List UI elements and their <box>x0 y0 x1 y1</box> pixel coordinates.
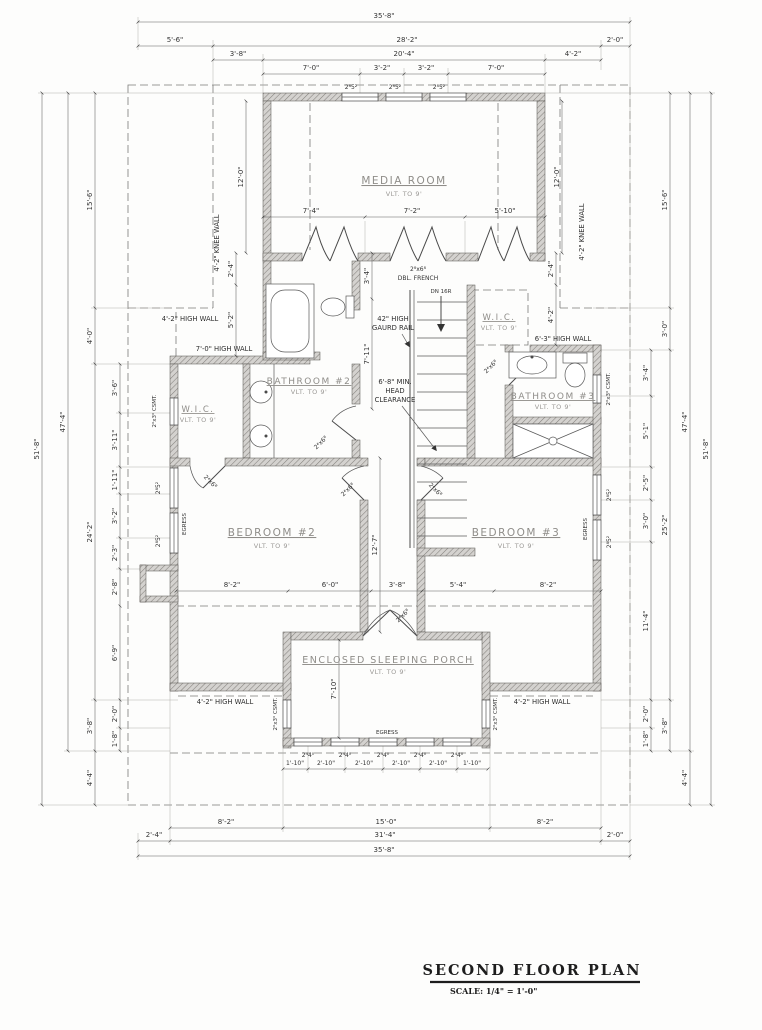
dim-right-overall: 51'-8" <box>702 438 710 459</box>
high-wall-top-left: 4'-2" HIGH WALL <box>162 315 219 323</box>
guard-rail-note: 42" HIGH <box>377 315 408 323</box>
svg-text:2'-0": 2'-0" <box>607 36 624 44</box>
sheet-scale: SCALE: 1/4" = 1'-0" <box>450 986 537 996</box>
head-clearance-note: 6'-8" MIN. <box>378 378 411 386</box>
svg-text:7'-10": 7'-10" <box>330 678 338 699</box>
door-tag-bath2: 2⁴x6⁸ <box>313 434 330 451</box>
svg-text:4'-4": 4'-4" <box>681 770 689 787</box>
svg-text:4'-2": 4'-2" <box>547 307 555 324</box>
toilet-bath3 <box>563 353 587 387</box>
svg-text:3'-2": 3'-2" <box>111 508 119 525</box>
svg-text:47'-4": 47'-4" <box>681 411 689 432</box>
svg-text:3'-8": 3'-8" <box>86 718 94 735</box>
svg-text:3'-0": 3'-0" <box>661 321 669 338</box>
bedroom2-label: BEDROOM #2 <box>228 527 317 539</box>
svg-text:12'-0": 12'-0" <box>553 166 561 187</box>
svg-text:8'-2": 8'-2" <box>537 818 554 826</box>
svg-text:25'-2": 25'-2" <box>661 514 669 535</box>
svg-text:11'-4": 11'-4" <box>642 610 650 631</box>
svg-text:2'-0": 2'-0" <box>607 831 624 839</box>
door-tag-wic: 2⁴x6⁸ <box>202 474 219 491</box>
porch-window-tag-2: 2⁴4⁰ <box>339 752 352 759</box>
svg-text:31'-4": 31'-4" <box>374 831 395 839</box>
wic-left-label: W.I.C. <box>182 405 215 415</box>
media-window-tag-1: 2⁸5² <box>345 84 358 91</box>
egress-left: EGRESS <box>182 512 188 535</box>
wic-center-label: W.I.C. <box>483 313 516 323</box>
svg-text:5'-1": 5'-1" <box>642 423 650 440</box>
svg-text:3'-2": 3'-2" <box>418 64 435 72</box>
svg-text:2'-0": 2'-0" <box>111 706 119 723</box>
svg-text:HEAD: HEAD <box>385 387 404 395</box>
bathtub <box>266 284 314 358</box>
svg-text:24'-2": 24'-2" <box>86 521 94 542</box>
svg-text:2'-10": 2'-10" <box>317 760 335 767</box>
door-tag-bath3: 2⁴x6⁸ <box>483 358 500 375</box>
svg-text:5'-4": 5'-4" <box>450 581 467 589</box>
egress-porch: EGRESS <box>376 730 399 736</box>
egress-right: EGRESS <box>583 517 589 540</box>
fixtures <box>250 284 593 458</box>
svg-text:2'-8": 2'-8" <box>111 579 119 596</box>
high-wall-bottom-left: 4'-2" HIGH WALL <box>197 698 254 706</box>
media-windows <box>342 93 466 101</box>
knee-wall-left: 4'-2" KNEE WALL <box>213 214 221 271</box>
svg-text:20'-4": 20'-4" <box>393 50 414 58</box>
porch-window-tag-1: 2⁴4⁰ <box>302 752 315 759</box>
svg-text:4'-0": 4'-0" <box>86 328 94 345</box>
dim-left-overall: 51'-8" <box>33 438 41 459</box>
svg-text:4'-2": 4'-2" <box>565 50 582 58</box>
svg-text:2'-3": 2'-3" <box>111 545 119 562</box>
svg-text:15'-6": 15'-6" <box>86 189 94 210</box>
french-door-size: 2⁸x6⁸ <box>410 266 427 273</box>
casement-porch-left: 2⁰x3⁰ CSMT. <box>272 697 279 730</box>
svg-text:1'-10": 1'-10" <box>286 760 304 767</box>
svg-text:7'-4": 7'-4" <box>303 207 320 215</box>
media-window-tag-2: 2⁸5² <box>389 84 402 91</box>
dim-bottom-overall: 35'-8" <box>373 846 394 854</box>
svg-text:3'-0": 3'-0" <box>642 513 650 530</box>
svg-text:CLEARANCE: CLEARANCE <box>375 396 416 404</box>
svg-text:2'-0": 2'-0" <box>642 706 650 723</box>
media-window-tag-3: 2⁸5² <box>433 84 446 91</box>
porch-window-tag-4: 2⁴4⁰ <box>414 752 427 759</box>
svg-text:2'-10": 2'-10" <box>392 760 410 767</box>
svg-text:4'-4": 4'-4" <box>86 770 94 787</box>
porch-windows <box>283 700 490 746</box>
stair-dn-label: DN 16R <box>431 289 452 295</box>
svg-text:VLT. TO 9': VLT. TO 9' <box>386 190 423 198</box>
svg-text:47'-4": 47'-4" <box>59 411 67 432</box>
svg-text:5'-2": 5'-2" <box>227 312 235 329</box>
toilet-bath2 <box>321 296 354 318</box>
svg-text:12'-7": 12'-7" <box>371 534 379 555</box>
right-window-tag-2: 2⁸5² <box>606 535 613 548</box>
blueprint-page: 35'-8" 5'-6"28'-2"2'-0" 3'-8"20'-4"4'-2"… <box>0 0 762 1030</box>
svg-text:3'-8": 3'-8" <box>661 718 669 735</box>
svg-text:GAURD RAIL: GAURD RAIL <box>372 324 414 332</box>
svg-text:3'-8": 3'-8" <box>230 50 247 58</box>
porch-window-tag-3: 2⁴4⁰ <box>377 752 390 759</box>
svg-text:1'-8": 1'-8" <box>642 731 650 748</box>
svg-text:6'-0": 6'-0" <box>322 581 339 589</box>
left-window-tag-1: 2⁸5² <box>155 481 162 494</box>
svg-text:7'-11": 7'-11" <box>363 343 371 364</box>
porch-window-tag-5: 2⁴4⁰ <box>451 752 464 759</box>
casement-wic-left: 2⁰x3⁰ CSMT. <box>151 394 158 427</box>
svg-text:7'-2": 7'-2" <box>404 207 421 215</box>
high-wall-bottom-right: 4'-2" HIGH WALL <box>514 698 571 706</box>
svg-text:2'-4": 2'-4" <box>547 261 555 278</box>
porch-label: ENCLOSED SLEEPING PORCH <box>302 655 474 666</box>
svg-text:28'-2": 28'-2" <box>396 36 417 44</box>
casement-bath3: 2⁰x3⁰ CSMT. <box>605 372 612 405</box>
bath2-door <box>332 406 356 440</box>
svg-text:15'-0": 15'-0" <box>375 818 396 826</box>
bathroom3-label: BATHROOM #3 <box>511 392 596 402</box>
svg-text:8'-2": 8'-2" <box>540 581 557 589</box>
door-tag-bed3: 2⁴x6⁸ <box>427 482 444 499</box>
svg-text:3'-2": 3'-2" <box>374 64 391 72</box>
svg-text:3'-6": 3'-6" <box>111 380 119 397</box>
left-wall-windows <box>170 398 178 553</box>
right-window-tag-1: 2⁸5² <box>606 488 613 501</box>
svg-text:6'-9": 6'-9" <box>111 645 119 662</box>
svg-text:3'-4": 3'-4" <box>363 268 371 285</box>
second-floor-plan-drawing: 35'-8" 5'-6"28'-2"2'-0" 3'-8"20'-4"4'-2"… <box>0 0 762 1030</box>
svg-text:2'-10": 2'-10" <box>355 760 373 767</box>
svg-text:VLT. TO 9': VLT. TO 9' <box>180 416 217 424</box>
french-doors-media <box>302 227 530 261</box>
svg-text:7'-0": 7'-0" <box>303 64 320 72</box>
svg-text:3'-4": 3'-4" <box>642 365 650 382</box>
dim-top-overall: 35'-8" <box>373 12 394 20</box>
left-window-tag-2: 2⁸5² <box>155 534 162 547</box>
svg-text:VLT. TO 9': VLT. TO 9' <box>481 324 518 332</box>
french-door-type: DBL. FRENCH <box>398 275 439 282</box>
high-wall-7-0: 7'-0" HIGH WALL <box>196 345 253 353</box>
svg-text:VLT. TO 9': VLT. TO 9' <box>254 542 291 550</box>
svg-text:5'-6": 5'-6" <box>167 36 184 44</box>
title-block: SECOND FLOOR PLAN SCALE: 1/4" = 1'-0" <box>422 962 641 996</box>
svg-text:3'-11": 3'-11" <box>111 429 119 450</box>
svg-text:VLT. TO 9': VLT. TO 9' <box>535 403 572 411</box>
dimension-text: 35'-8" 5'-6"28'-2"2'-0" 3'-8"20'-4"4'-2"… <box>33 12 710 854</box>
bathroom2-label: BATHROOM #2 <box>267 377 352 387</box>
svg-text:3'-8": 3'-8" <box>389 581 406 589</box>
vanity-bath3 <box>509 352 556 378</box>
casement-porch-right: 2⁰x3⁰ CSMT. <box>492 697 499 730</box>
knee-wall-right: 4'-2" KNEE WALL <box>578 203 586 260</box>
svg-text:2'-5": 2'-5" <box>642 475 650 492</box>
svg-text:VLT. TO 9': VLT. TO 9' <box>370 668 407 676</box>
media-room-label: MEDIA ROOM <box>361 175 446 187</box>
svg-text:2'-4": 2'-4" <box>227 261 235 278</box>
svg-text:VLT. TO 9': VLT. TO 9' <box>498 542 535 550</box>
svg-text:8'-2": 8'-2" <box>224 581 241 589</box>
svg-text:1'-8": 1'-8" <box>111 731 119 748</box>
shower-bath3 <box>513 424 593 458</box>
svg-text:15'-6": 15'-6" <box>661 189 669 210</box>
svg-text:VLT. TO 9': VLT. TO 9' <box>291 388 328 396</box>
svg-text:12'-0": 12'-0" <box>237 166 245 187</box>
bedroom3-label: BEDROOM #3 <box>472 527 561 539</box>
svg-text:2'-10": 2'-10" <box>429 760 447 767</box>
svg-text:7'-0": 7'-0" <box>488 64 505 72</box>
high-wall-6-3: 6'-3" HIGH WALL <box>535 335 592 343</box>
door-tag-porch: 2⁴x6⁸ <box>395 607 412 624</box>
svg-text:5'-10": 5'-10" <box>494 207 515 215</box>
svg-text:2'-4": 2'-4" <box>146 831 163 839</box>
svg-text:1'-11": 1'-11" <box>111 469 119 490</box>
svg-text:8'-2": 8'-2" <box>218 818 235 826</box>
sheet-title: SECOND FLOOR PLAN <box>422 962 641 979</box>
svg-text:1'-10": 1'-10" <box>463 760 481 767</box>
